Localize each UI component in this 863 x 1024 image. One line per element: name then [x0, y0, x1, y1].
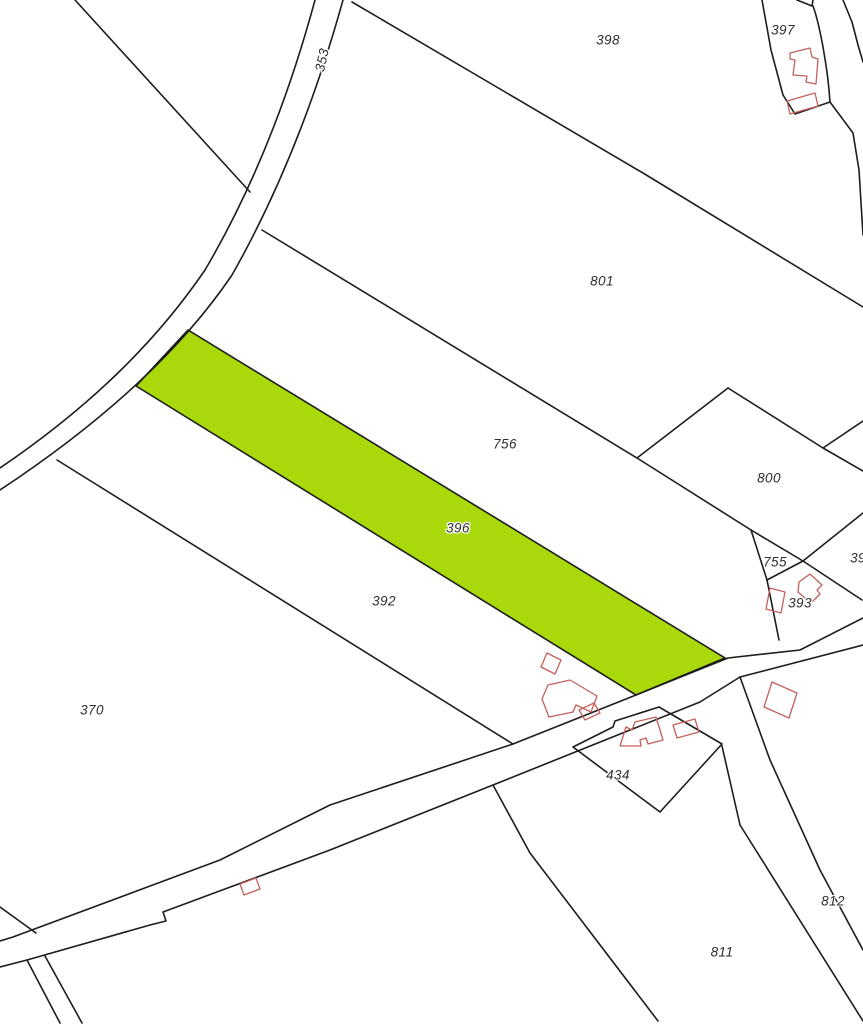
cadastral-map[interactable]: 398 397 353 801 756 800 396 755 39 393 3… [0, 0, 863, 1024]
road-branch-down-right-edge [45, 956, 82, 1023]
parcel-397-top-notch [797, 0, 813, 6]
boundary-811-west [493, 785, 658, 1021]
building-392-shed [541, 653, 561, 674]
parcel-label-811: 811 [711, 945, 734, 960]
parcel-label-397: 397 [771, 23, 795, 38]
parcel-label-393: 393 [788, 596, 812, 611]
building-397-annex [787, 93, 818, 114]
road-branch-down-left-edge [27, 960, 60, 1023]
road-right-edge-lower [830, 102, 863, 235]
parcel-label-392: 392 [372, 594, 396, 609]
parcel-label-39-clipped: 39 [850, 551, 863, 566]
boundary-topleft-diagonal [75, 0, 250, 192]
parcel-label-755: 755 [763, 555, 787, 570]
boundary-398-801 [352, 2, 863, 307]
parcel-label-396-highlighted: 396 [446, 521, 470, 536]
parcel-label-756: 756 [493, 437, 517, 452]
parcel-label-398: 398 [596, 33, 620, 48]
parcel-label-800: 800 [757, 471, 781, 486]
parcel-label-812: 812 [821, 894, 845, 909]
parcel-800-north-edge [728, 388, 863, 471]
building-392-house [542, 680, 597, 717]
building-393-small [766, 588, 785, 613]
boundary-812-west [740, 677, 863, 950]
building-ne-barn [764, 682, 797, 718]
parcel-label-370: 370 [80, 703, 104, 718]
boundary-39x-393 [767, 513, 863, 580]
boundary-branch-ne [823, 421, 863, 448]
building-sw-shed [240, 878, 260, 895]
parcel-label-801: 801 [590, 274, 614, 289]
parcel-396-highlight[interactable] [136, 330, 725, 695]
road-branch-west [0, 907, 36, 933]
parcel-397-outline [762, 0, 830, 114]
parcel-800-west-edges [637, 388, 751, 530]
building-397-house [790, 48, 818, 84]
road-lower-north-edge [0, 618, 863, 941]
parcel-label-434: 434 [606, 768, 630, 783]
boundary-755-west [751, 530, 779, 640]
boundary-811-812 [722, 746, 863, 1021]
road-right-edge-top [843, 0, 863, 62]
map-canvas [0, 0, 863, 1024]
